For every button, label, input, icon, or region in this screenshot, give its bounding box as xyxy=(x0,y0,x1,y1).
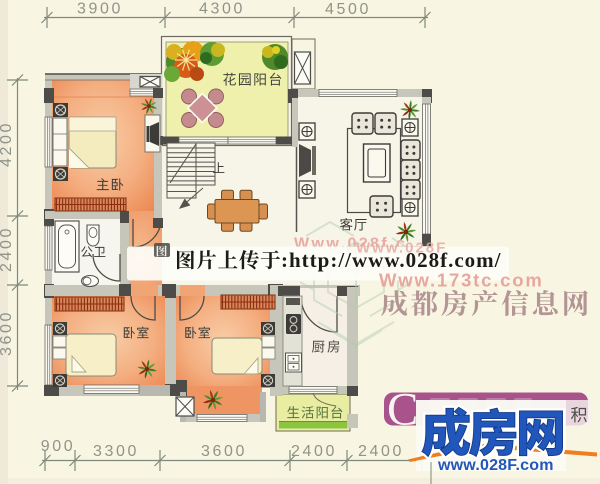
svg-text:3300: 3300 xyxy=(93,443,139,460)
svg-text:C: C xyxy=(387,384,418,436)
svg-text:www.028F.com: www.028F.com xyxy=(437,457,554,474)
svg-text:900: 900 xyxy=(41,438,76,455)
svg-text::http://www.028f.com/: :http://www.028f.com/ xyxy=(281,248,502,272)
svg-text:2400: 2400 xyxy=(0,226,15,272)
svg-text:3600: 3600 xyxy=(0,310,15,356)
svg-text:Www.173tc.com: Www.173tc.com xyxy=(379,270,544,291)
svg-text:2400: 2400 xyxy=(358,443,404,460)
svg-text:4300: 4300 xyxy=(199,1,245,18)
svg-text:2400: 2400 xyxy=(291,443,337,460)
svg-text:3600: 3600 xyxy=(201,443,247,460)
svg-text:3900: 3900 xyxy=(77,1,123,18)
svg-text:4200: 4200 xyxy=(0,121,15,167)
svg-text:4500: 4500 xyxy=(325,1,371,18)
